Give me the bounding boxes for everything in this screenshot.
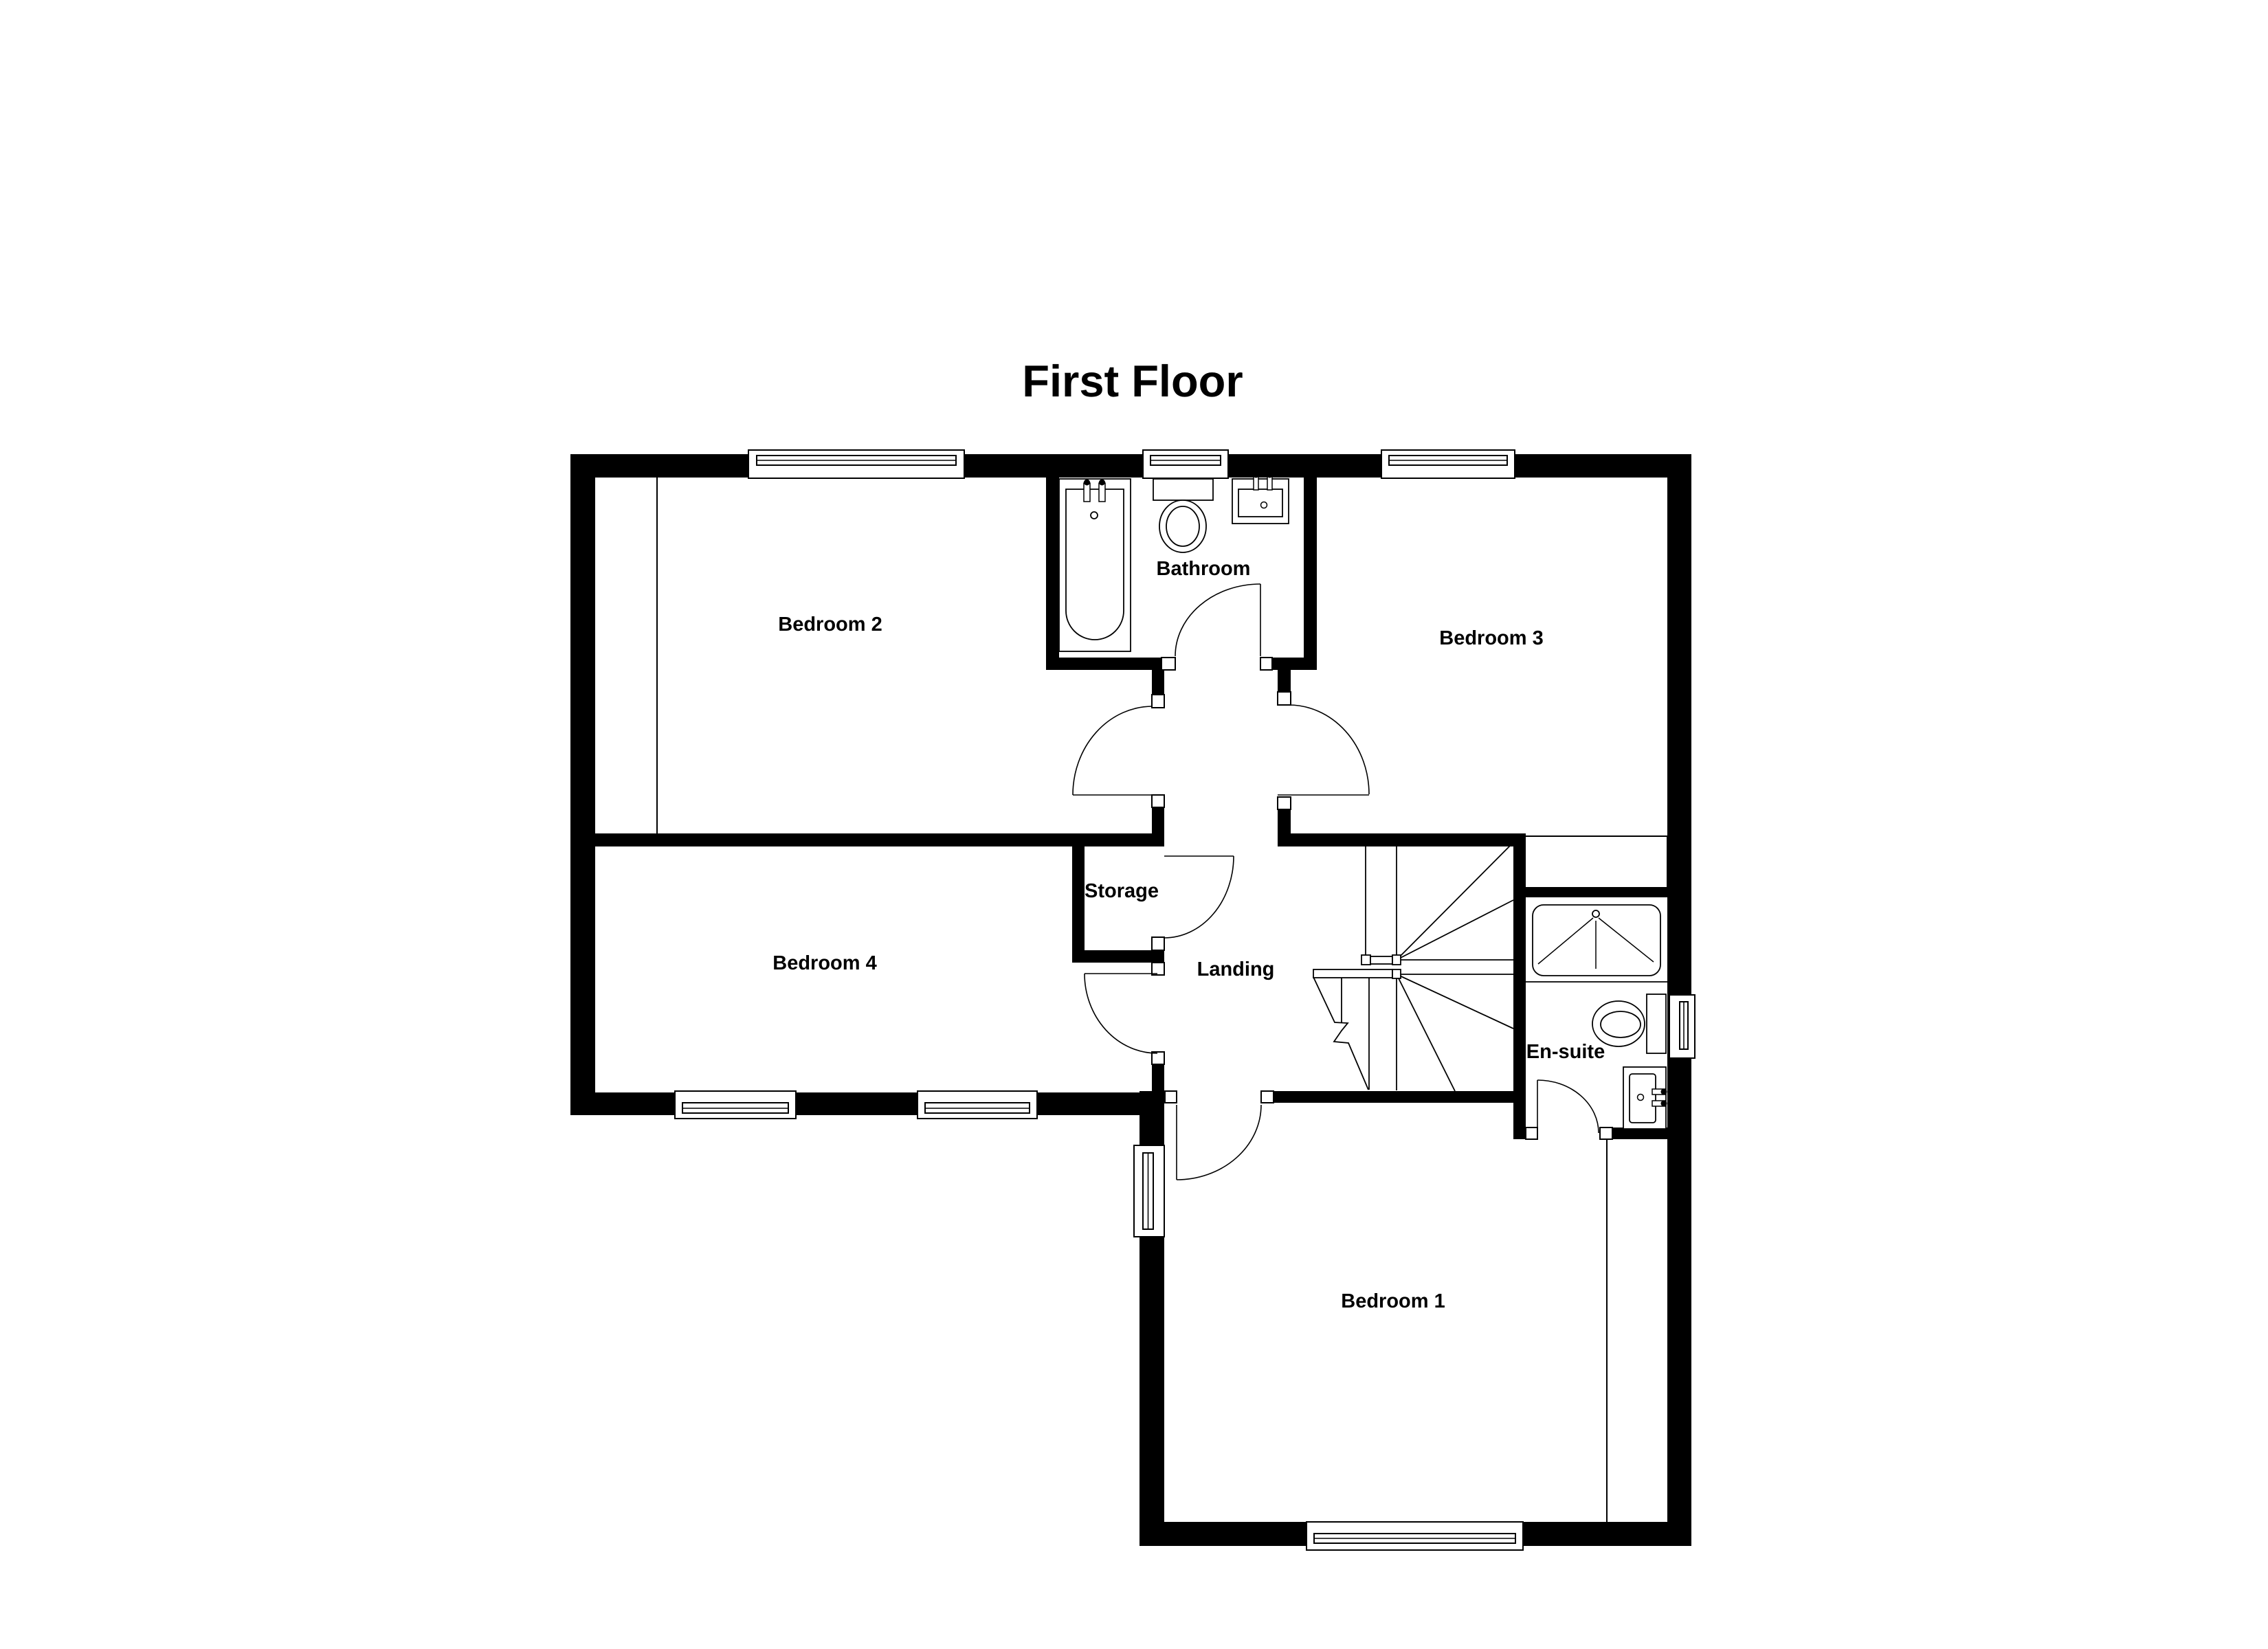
svg-text:Bedroom 2: Bedroom 2: [778, 614, 882, 636]
svg-text:Bedroom 1: Bedroom 1: [1341, 1290, 1445, 1312]
svg-text:En-suite: En-suite: [1526, 1041, 1605, 1063]
svg-text:Bedroom 4: Bedroom 4: [772, 952, 876, 974]
svg-text:Bedroom 3: Bedroom 3: [1439, 627, 1543, 649]
svg-text:Bathroom: Bathroom: [1157, 558, 1251, 580]
svg-text:Landing: Landing: [1197, 958, 1275, 980]
svg-text:Storage: Storage: [1085, 880, 1159, 902]
svg-text:First Floor: First Floor: [1022, 356, 1243, 406]
